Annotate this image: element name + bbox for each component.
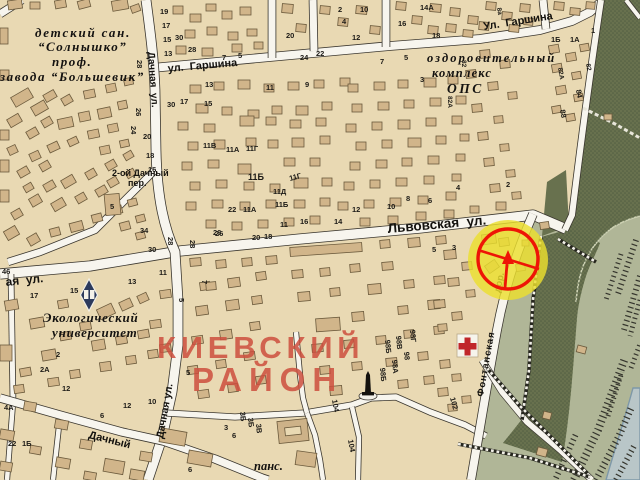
svg-text:26: 26 <box>134 108 143 116</box>
svg-text:1А: 1А <box>570 35 580 44</box>
svg-text:6: 6 <box>232 431 236 440</box>
svg-text:11Д: 11Д <box>273 187 287 196</box>
svg-text:7: 7 <box>200 280 209 284</box>
svg-text:комплекс: комплекс <box>432 66 492 80</box>
svg-text:26: 26 <box>215 229 223 238</box>
svg-text:1Б: 1Б <box>551 35 561 44</box>
svg-text:11: 11 <box>159 268 167 277</box>
svg-text:10: 10 <box>387 202 395 211</box>
svg-text:ОПС: ОПС <box>447 81 484 96</box>
svg-text:8: 8 <box>406 194 410 203</box>
svg-text:20: 20 <box>286 31 294 40</box>
svg-text:14: 14 <box>334 217 343 226</box>
svg-text:12: 12 <box>352 33 360 42</box>
svg-text:28: 28 <box>135 60 144 68</box>
svg-text:16: 16 <box>398 19 406 28</box>
svg-text:30: 30 <box>148 245 156 254</box>
svg-text:2: 2 <box>506 180 510 189</box>
svg-text:13: 13 <box>205 80 213 89</box>
svg-text:10: 10 <box>360 5 368 14</box>
svg-text:11А: 11А <box>226 145 240 154</box>
svg-text:оздоровительный: оздоровительный <box>427 51 556 65</box>
svg-text:9: 9 <box>305 80 309 89</box>
svg-text:4А: 4А <box>4 403 14 412</box>
svg-text:22: 22 <box>8 439 16 448</box>
svg-text:18: 18 <box>264 232 272 241</box>
svg-text:34: 34 <box>140 226 149 235</box>
svg-text:2: 2 <box>338 5 342 14</box>
svg-text:11В: 11В <box>203 141 217 150</box>
svg-text:30: 30 <box>167 100 175 109</box>
svg-text:12: 12 <box>352 205 360 214</box>
svg-text:24: 24 <box>129 126 138 135</box>
svg-text:Экологический: Экологический <box>43 310 139 325</box>
svg-text:панс.: панс. <box>254 459 283 473</box>
svg-text:детский сан.: детский сан. <box>35 25 131 40</box>
svg-text:17: 17 <box>162 21 170 30</box>
svg-text:проф.: проф. <box>52 54 92 69</box>
svg-text:завода “Большевик”: завода “Большевик” <box>0 69 145 84</box>
svg-text:98Б: 98Б <box>383 339 393 354</box>
svg-text:11Б: 11Б <box>248 172 265 182</box>
svg-text:5: 5 <box>186 368 190 377</box>
svg-text:15: 15 <box>163 35 171 44</box>
svg-text:22: 22 <box>316 49 324 58</box>
svg-text:5: 5 <box>110 202 114 211</box>
svg-text:5: 5 <box>432 245 436 254</box>
svg-text:98: 98 <box>402 351 412 360</box>
svg-text:2-ой Дачный: 2-ой Дачный <box>112 168 169 178</box>
svg-text:17: 17 <box>180 97 188 106</box>
svg-text:88: 88 <box>558 109 568 119</box>
svg-text:1: 1 <box>591 26 595 35</box>
svg-text:82А: 82А <box>446 96 453 108</box>
svg-text:22: 22 <box>228 205 236 214</box>
svg-text:18: 18 <box>432 31 440 40</box>
svg-text:РАЙОН: РАЙОН <box>192 360 343 398</box>
svg-text:24: 24 <box>300 53 309 62</box>
svg-text:28: 28 <box>188 240 197 248</box>
svg-text:2А: 2А <box>40 365 50 374</box>
svg-text:30: 30 <box>175 33 183 42</box>
svg-text:19: 19 <box>160 7 168 16</box>
svg-text:пер.: пер. <box>128 178 146 188</box>
svg-text:11: 11 <box>266 83 274 92</box>
svg-text:5: 5 <box>238 51 242 60</box>
svg-text:18: 18 <box>146 151 154 160</box>
svg-text:университет: университет <box>50 325 138 340</box>
svg-text:7: 7 <box>222 53 226 62</box>
svg-text:5: 5 <box>177 298 186 302</box>
svg-text:6: 6 <box>428 196 432 205</box>
svg-text:15: 15 <box>204 99 212 108</box>
svg-text:7: 7 <box>380 57 384 66</box>
svg-text:98Б: 98Б <box>378 367 388 382</box>
svg-text:11Б: 11Б <box>275 200 289 209</box>
svg-text:13: 13 <box>128 277 136 286</box>
svg-text:17: 17 <box>30 291 38 300</box>
svg-text:11Г: 11Г <box>246 144 259 153</box>
svg-text:14А: 14А <box>420 3 434 12</box>
svg-text:5: 5 <box>404 53 408 62</box>
svg-text:28: 28 <box>188 45 196 54</box>
svg-text:3: 3 <box>420 75 424 84</box>
svg-text:“Солнышко”: “Солнышко” <box>38 39 127 54</box>
svg-text:11: 11 <box>280 220 288 229</box>
svg-text:16: 16 <box>148 165 156 174</box>
svg-text:2: 2 <box>56 350 60 359</box>
svg-text:16: 16 <box>300 217 308 226</box>
svg-text:98В: 98В <box>394 335 404 350</box>
svg-text:15: 15 <box>70 286 78 295</box>
svg-text:6: 6 <box>188 465 192 474</box>
svg-text:3: 3 <box>224 423 228 432</box>
svg-text:20: 20 <box>252 233 260 242</box>
svg-text:10: 10 <box>148 397 156 406</box>
svg-text:46: 46 <box>2 267 10 276</box>
svg-text:98Г: 98Г <box>408 329 418 343</box>
svg-text:82: 82 <box>460 60 467 68</box>
svg-text:28: 28 <box>166 237 175 245</box>
svg-text:6: 6 <box>100 411 104 420</box>
svg-text:12: 12 <box>62 384 70 393</box>
svg-text:11А: 11А <box>243 205 257 214</box>
svg-text:12: 12 <box>123 401 131 410</box>
svg-text:98А: 98А <box>390 359 400 374</box>
svg-text:3В: 3В <box>254 423 264 434</box>
svg-text:3: 3 <box>452 243 456 252</box>
svg-text:КИЕВСКИЙ: КИЕВСКИЙ <box>157 329 364 365</box>
svg-text:13: 13 <box>164 49 172 58</box>
svg-text:1Б: 1Б <box>22 439 32 448</box>
svg-text:20: 20 <box>143 132 151 141</box>
